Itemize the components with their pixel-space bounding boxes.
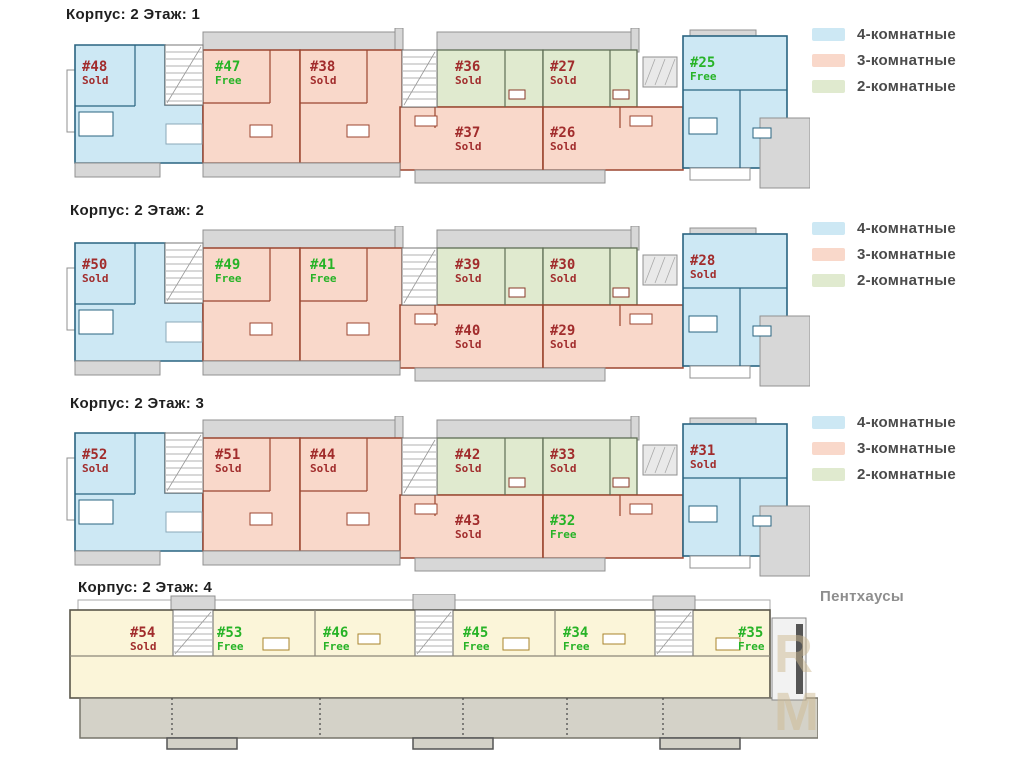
floor-3-plan: #52 Sold #51 Sold #44 Sold #42 Sold #33 …	[65, 416, 810, 583]
legend-item-label: 4-комнатные	[857, 26, 956, 43]
svg-text:#40: #40	[455, 323, 480, 339]
legend-item: 4-комнатные	[812, 26, 1012, 43]
apartment-50[interactable]: #50 Sold	[82, 257, 109, 285]
apartment-25[interactable]: #25 Free	[690, 55, 717, 83]
elevator-lobby	[166, 512, 202, 532]
svg-text:Sold: Sold	[215, 462, 242, 475]
balcony-strip	[690, 168, 750, 180]
apartment-53[interactable]: #53 Free	[217, 625, 244, 653]
balcony-strip	[415, 170, 605, 183]
svg-text:Free: Free	[690, 70, 717, 83]
legend-swatch-green	[812, 274, 845, 287]
balcony-strip	[203, 163, 400, 177]
svg-text:#36: #36	[455, 59, 480, 75]
svg-text:#43: #43	[455, 513, 480, 529]
balcony-strip	[415, 558, 605, 571]
floor-1-plan: #48 Sold #47 Free #38 Sold #36 Sold #27 …	[65, 28, 810, 195]
apartment-49[interactable]: #49 Free	[215, 257, 242, 285]
apartment-41[interactable]: #41 Free	[310, 257, 337, 285]
apartment-51[interactable]: #51 Sold	[215, 447, 242, 475]
apartment-39[interactable]: #39 Sold	[455, 257, 482, 285]
svg-text:Sold: Sold	[82, 272, 109, 285]
svg-text:#44: #44	[310, 447, 335, 463]
svg-text:#50: #50	[82, 257, 107, 273]
svg-text:Sold: Sold	[455, 528, 482, 541]
apartment-52[interactable]: #52 Sold	[82, 447, 109, 475]
svg-text:Sold: Sold	[550, 338, 577, 351]
svg-text:Sold: Sold	[310, 462, 337, 475]
apartment-45[interactable]: #45 Free	[463, 625, 490, 653]
apartment-42-room[interactable]	[437, 438, 543, 495]
watermark: R	[774, 624, 813, 684]
apartment-48[interactable]: #48 Sold	[82, 59, 109, 87]
apartment-40[interactable]: #40 Sold	[455, 323, 482, 351]
svg-text:Sold: Sold	[130, 640, 157, 653]
balcony-left	[67, 458, 75, 520]
svg-text:Sold: Sold	[310, 74, 337, 87]
svg-text:#42: #42	[455, 447, 480, 463]
apartment-34[interactable]: #34 Free	[563, 625, 590, 653]
legend-item-label: 3-комнатные	[857, 52, 956, 69]
legend-item-label: 3-комнатные	[857, 246, 956, 263]
terrace	[80, 698, 818, 738]
watermark: M	[774, 682, 818, 742]
balcony-strip	[690, 366, 750, 378]
apartment-26[interactable]: #26 Sold	[550, 125, 577, 153]
svg-text:Free: Free	[215, 272, 242, 285]
balcony-left	[67, 70, 75, 132]
floor-1-legend: 4-комнатные 3-комнатные 2-комнатные	[812, 26, 1012, 104]
legend-swatch-green	[812, 468, 845, 481]
legend-swatch-blue	[812, 28, 845, 41]
svg-text:#28: #28	[690, 253, 715, 269]
floor-2-plan: #50 Sold #49 Free #41 Free #39 Sold #30 …	[65, 226, 810, 393]
svg-text:Sold: Sold	[455, 74, 482, 87]
svg-text:#52: #52	[82, 447, 107, 463]
legend-item-label: 4-комнатные	[857, 220, 956, 237]
balcony-strip	[75, 361, 160, 375]
legend-item: 2-комнатные	[812, 272, 1012, 289]
svg-text:#32: #32	[550, 513, 575, 529]
apartment-44[interactable]: #44 Sold	[310, 447, 337, 475]
legend-item: 2-комнатные	[812, 466, 1012, 483]
svg-text:Sold: Sold	[455, 338, 482, 351]
penthouse-section-label: Пентхаусы	[820, 588, 904, 605]
legend-item: 4-комнатные	[812, 414, 1012, 431]
legend-swatch-green	[812, 80, 845, 93]
svg-text:Sold: Sold	[455, 462, 482, 475]
balcony-strip	[203, 551, 400, 565]
svg-text:#47: #47	[215, 59, 240, 75]
svg-text:Free: Free	[563, 640, 590, 653]
balcony-strip	[690, 556, 750, 568]
svg-text:#30: #30	[550, 257, 575, 273]
terrace-step	[413, 738, 493, 749]
floor-1-title: Корпус: 2 Этаж: 1	[66, 6, 200, 23]
floor-4-plan: RM #54 Sold #53 Free #46 Free #45 Free #…	[58, 594, 818, 761]
apartment-47[interactable]: #47 Free	[215, 59, 242, 87]
apartment-31[interactable]: #31 Sold	[690, 443, 717, 471]
apartment-46[interactable]: #46 Free	[323, 625, 350, 653]
elevator-lobby	[166, 124, 202, 144]
legend-item: 3-комнатные	[812, 440, 1012, 457]
apartment-43[interactable]: #43 Sold	[455, 513, 482, 541]
legend-item-label: 2-комнатные	[857, 272, 956, 289]
balcony-strip	[203, 361, 400, 375]
apartment-42[interactable]: #42 Sold	[455, 447, 482, 475]
floor-2-title: Корпус: 2 Этаж: 2	[70, 202, 204, 219]
svg-text:Sold: Sold	[455, 272, 482, 285]
svg-text:Free: Free	[738, 640, 765, 653]
svg-text:#38: #38	[310, 59, 335, 75]
balcony-strip	[203, 230, 402, 248]
balcony-left	[67, 268, 75, 330]
apartment-36[interactable]: #36 Sold	[455, 59, 482, 87]
apartment-30[interactable]: #30 Sold	[550, 257, 577, 285]
apartment-39-room[interactable]	[437, 248, 543, 305]
svg-text:#53: #53	[217, 625, 242, 641]
apartment-54[interactable]: #54 Sold	[130, 625, 157, 653]
balcony-strip	[203, 32, 402, 50]
apartment-27[interactable]: #27 Sold	[550, 59, 577, 87]
apartment-37[interactable]: #37 Sold	[455, 125, 482, 153]
legend-swatch-pink	[812, 442, 845, 455]
svg-text:#25: #25	[690, 55, 715, 71]
balcony-strip	[415, 368, 605, 381]
svg-text:Free: Free	[217, 640, 244, 653]
svg-text:#35: #35	[738, 625, 763, 641]
legend-item-label: 4-комнатные	[857, 414, 956, 431]
svg-text:#51: #51	[215, 447, 240, 463]
legend-item: 3-комнатные	[812, 52, 1012, 69]
svg-text:#29: #29	[550, 323, 575, 339]
terrace-step	[167, 738, 237, 749]
svg-text:#37: #37	[455, 125, 480, 141]
svg-text:Sold: Sold	[550, 140, 577, 153]
legend-item: 3-комнатные	[812, 246, 1012, 263]
svg-text:Free: Free	[550, 528, 577, 541]
svg-text:#33: #33	[550, 447, 575, 463]
legend-swatch-blue	[812, 416, 845, 429]
terrace-step	[660, 738, 740, 749]
apartment-36-room[interactable]	[437, 50, 543, 107]
svg-text:#31: #31	[690, 443, 715, 459]
svg-text:#49: #49	[215, 257, 240, 273]
legend-item-label: 2-комнатные	[857, 466, 956, 483]
svg-text:Sold: Sold	[82, 74, 109, 87]
svg-text:#45: #45	[463, 625, 488, 641]
balcony-strip	[437, 32, 637, 50]
apartment-29[interactable]: #29 Sold	[550, 323, 577, 351]
svg-text:#26: #26	[550, 125, 575, 141]
apartment-33[interactable]: #33 Sold	[550, 447, 577, 475]
svg-text:#54: #54	[130, 625, 155, 641]
legend-swatch-blue	[812, 222, 845, 235]
svg-text:Sold: Sold	[550, 462, 577, 475]
svg-text:#27: #27	[550, 59, 575, 75]
legend-item: 4-комнатные	[812, 220, 1012, 237]
legend-item-label: 2-комнатные	[857, 78, 956, 95]
balcony-strip	[75, 163, 160, 177]
svg-text:#41: #41	[310, 257, 335, 273]
elevator-lobby	[166, 322, 202, 342]
svg-text:#46: #46	[323, 625, 348, 641]
balcony-strip	[437, 230, 637, 248]
legend-swatch-pink	[812, 54, 845, 67]
svg-text:Sold: Sold	[82, 462, 109, 475]
svg-text:#48: #48	[82, 59, 107, 75]
floor-2-legend: 4-комнатные 3-комнатные 2-комнатные	[812, 220, 1012, 298]
svg-text:Free: Free	[215, 74, 242, 87]
apartment-28[interactable]: #28 Sold	[690, 253, 717, 281]
svg-text:#39: #39	[455, 257, 480, 273]
svg-text:Free: Free	[323, 640, 350, 653]
svg-text:Sold: Sold	[550, 74, 577, 87]
legend-item-label: 3-комнатные	[857, 440, 956, 457]
floor-3-title: Корпус: 2 Этаж: 3	[70, 395, 204, 412]
balcony-strip	[437, 420, 637, 438]
svg-text:Free: Free	[310, 272, 337, 285]
apartment-38[interactable]: #38 Sold	[310, 59, 337, 87]
balcony-strip	[203, 420, 402, 438]
apartment-35[interactable]: #35 Free	[738, 625, 765, 653]
svg-text:#34: #34	[563, 625, 588, 641]
svg-text:Sold: Sold	[455, 140, 482, 153]
legend-swatch-pink	[812, 248, 845, 261]
svg-text:Sold: Sold	[550, 272, 577, 285]
svg-text:Sold: Sold	[690, 268, 717, 281]
building-floor-plans: Корпус: 2 Этаж: 1 #48 Sold #47 Free #38 …	[0, 0, 1024, 768]
legend-item: 2-комнатные	[812, 78, 1012, 95]
svg-text:Free: Free	[463, 640, 490, 653]
svg-text:Sold: Sold	[690, 458, 717, 471]
balcony-strip	[75, 551, 160, 565]
apartment-32[interactable]: #32 Free	[550, 513, 577, 541]
floor-3-legend: 4-комнатные 3-комнатные 2-комнатные	[812, 414, 1012, 492]
